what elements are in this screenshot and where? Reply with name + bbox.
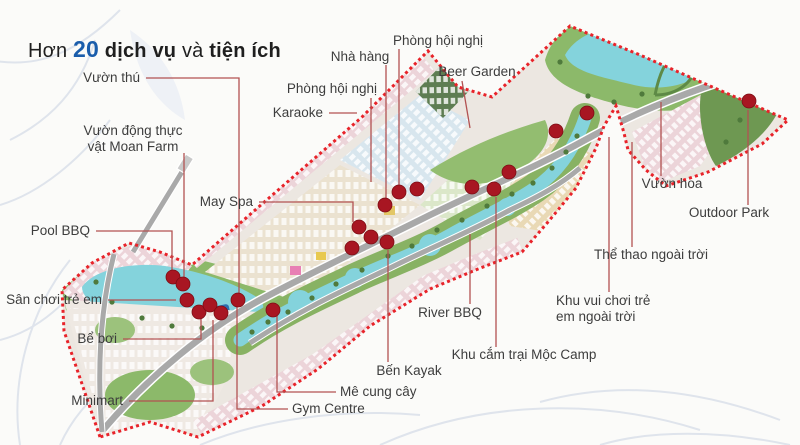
label-text: Vườn động thực (84, 123, 183, 139)
amenity-dot[interactable] (465, 180, 479, 194)
green-patch (190, 359, 234, 385)
the-thao-ngoai-troi-label: Thể thao ngoài trời (594, 247, 708, 263)
amenity-dot[interactable] (214, 306, 228, 320)
vuon-thu-label: Vườn thú (83, 70, 140, 86)
amenity-dot[interactable] (380, 235, 394, 249)
label-text: Minimart (71, 393, 123, 409)
amenity-dot[interactable] (345, 241, 359, 255)
label-text: Vườn hoa (642, 176, 703, 192)
karaoke-label: Karaoke (273, 105, 323, 121)
label-text: Phòng hội nghị (393, 33, 483, 49)
vuon-dong-thuc-vat-moan-farm-label: Vườn động thựcvật Moan Farm (84, 123, 183, 155)
amenity-dot[interactable] (580, 106, 594, 120)
label-text: Bến Kayak (376, 363, 441, 379)
amenity-dot[interactable] (231, 293, 245, 307)
label-text: Outdoor Park (689, 205, 769, 221)
label-text: Phòng hội nghị (287, 81, 377, 97)
label-text: Mê cung cây (340, 384, 417, 400)
label-text: Sân chơi trẻ em (6, 292, 102, 308)
label-text: Khu vui chơi trẻ (556, 293, 650, 309)
amenity-dot[interactable] (180, 293, 194, 307)
khu-vui-choi-tre-em-ngoai-troi-label: Khu vui chơi trẻem ngoài trời (556, 293, 650, 325)
title-part: 20 (73, 36, 99, 62)
pool-bbq-label: Pool BBQ (31, 223, 90, 239)
title-part: Hơn (28, 40, 73, 62)
label-text: Vườn thú (83, 70, 140, 86)
amenity-dot[interactable] (410, 182, 424, 196)
title-part: và (182, 40, 209, 62)
amenity-dot[interactable] (392, 185, 406, 199)
clubhouse-yellow (316, 252, 326, 260)
river-bbq-label: River BBQ (418, 305, 482, 321)
phong-hoi-nghi-top-label: Phòng hội nghị (393, 33, 483, 49)
amenity-dot[interactable] (352, 220, 366, 234)
amenity-dot[interactable] (364, 230, 378, 244)
label-text: Beer Garden (438, 64, 515, 80)
phong-hoi-nghi-left-label: Phòng hội nghị (287, 81, 377, 97)
label-text: Bể bơi (77, 331, 117, 347)
label-text: vật Moan Farm (84, 139, 183, 155)
title-part: tiện ích (209, 40, 281, 62)
label-text: Nhà hàng (331, 49, 390, 65)
vuon-hoa-label: Vườn hoa (642, 176, 703, 192)
amenity-dot[interactable] (549, 124, 563, 138)
beer-garden-label: Beer Garden (438, 64, 515, 80)
masterplan-infographic: Hơn 20 dịch vụ và tiện ích Vườn thúVườn … (0, 0, 800, 445)
amenity-dot[interactable] (502, 165, 516, 179)
label-text: Karaoke (273, 105, 323, 121)
ben-kayak-label: Bến Kayak (376, 363, 441, 379)
me-cung-cay-label: Mê cung cây (340, 384, 417, 400)
label-text: em ngoài trời (556, 309, 650, 325)
bridge-icon (177, 154, 194, 173)
page-title: Hơn 20 dịch vụ và tiện ích (28, 36, 281, 63)
outdoor-park-label: Outdoor Park (689, 205, 769, 221)
minimart-label: Minimart (71, 393, 123, 409)
amenity-dot[interactable] (742, 94, 756, 108)
amenity-dot[interactable] (176, 277, 190, 291)
label-text: Khu cắm trại Mộc Camp (452, 347, 597, 363)
label-text: Thể thao ngoài trời (594, 247, 708, 263)
label-text: May Spa (200, 194, 253, 210)
amenity-dot[interactable] (266, 303, 280, 317)
nha-hang-label: Nhà hàng (331, 49, 390, 65)
title-part: dịch vụ (99, 40, 182, 62)
label-text: Gym Centre (292, 401, 365, 417)
san-choi-tre-em-label: Sân chơi trẻ em (6, 292, 102, 308)
label-text: River BBQ (418, 305, 482, 321)
khu-cam-trai-moc-camp-label: Khu cắm trại Mộc Camp (452, 347, 597, 363)
amenity-dot[interactable] (378, 198, 392, 212)
may-spa-label: May Spa (200, 194, 253, 210)
amenity-dot[interactable] (487, 182, 501, 196)
be-boi-label: Bể bơi (77, 331, 117, 347)
clubhouse-pink (290, 266, 301, 275)
gym-centre-label: Gym Centre (292, 401, 365, 417)
label-text: Pool BBQ (31, 223, 90, 239)
